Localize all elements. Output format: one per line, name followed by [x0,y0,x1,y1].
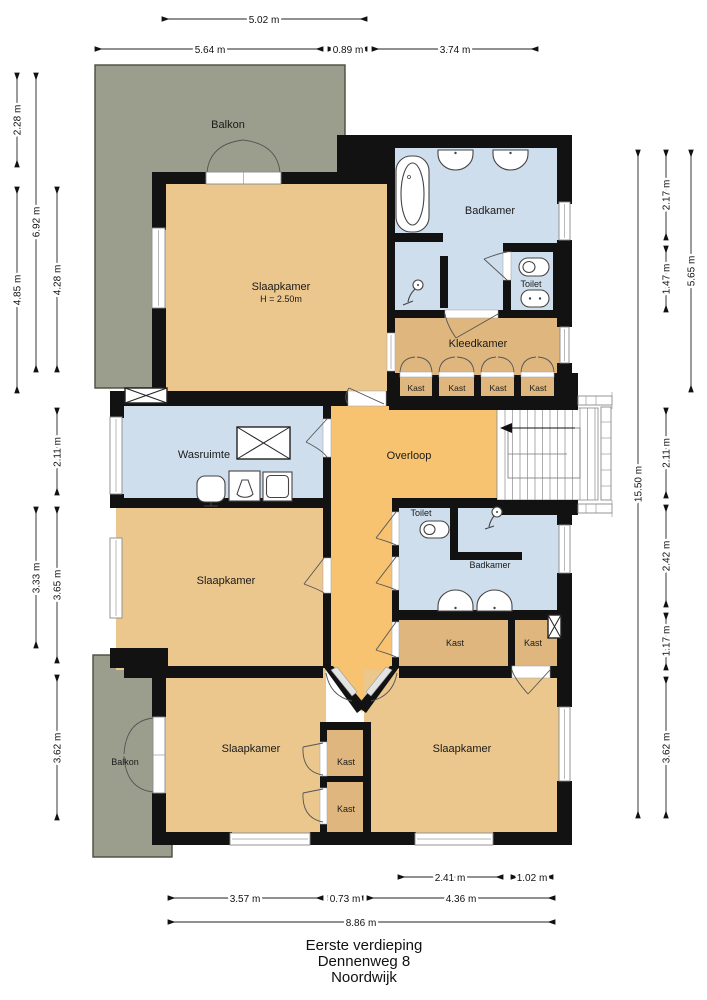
shaft-icon [125,388,167,403]
door-opening [320,788,327,824]
plan-title: Eerste verdieping Dennenweg 8 Noordwijk [306,937,423,986]
room-label-slaapkamer-tl-height: H = 2.50m [260,294,302,304]
title-street: Dennenweg 8 [318,953,411,970]
shaft-icon [548,615,561,638]
door-opening [320,742,327,776]
door-opening [348,391,386,406]
dimension-label: 5.02 m [249,15,280,26]
room-label-kast-b: Kast [448,383,466,393]
dimension-label: 3.74 m [440,45,471,56]
room-label-slaapkamer-mid: Slaapkamer [197,575,256,587]
dimension-label: 1.17 m [662,626,673,657]
dimension-label: 5.64 m [195,45,226,56]
dimension-label: 5.65 m [687,256,698,287]
room-label-kast-h: Kast [337,804,356,814]
door-opening [392,622,399,657]
bathtub-icon [396,156,429,232]
staircase [497,408,598,500]
room-label-kleedkamer: Kleedkamer [449,338,508,350]
dimension-label: 2.11 m [53,437,64,467]
title-city: Noordwijk [331,969,397,986]
room-label-wasruimte: Wasruimte [178,449,230,461]
dimension-label: 8.86 m [346,918,377,929]
dimension-label: 2.17 m [662,180,673,211]
dimension-label: 2.42 m [662,541,673,572]
shaft-icon [237,427,290,459]
room-label-balkon-bottom: Balkon [111,757,139,767]
dimension-label: 4.28 m [53,265,64,296]
door-opening [445,310,498,318]
room-floors [116,144,563,836]
door-opening [392,512,399,545]
room-label-balkon-top: Balkon [211,119,245,131]
room-label-kast-f: Kast [524,638,543,648]
laundry-sink-icon [197,476,225,506]
room-label-overloop: Overloop [387,450,432,462]
room-label-kast-c: Kast [489,383,507,393]
room-label-slaapkamer-tl: Slaapkamer [252,281,311,293]
dimension-label: 1.02 m [517,873,548,884]
washing-machine-icon [229,471,260,501]
room-label-slaapkamer-bl: Slaapkamer [222,743,281,755]
door-opening [503,252,511,280]
dimension-label: 0.73 m [330,894,361,905]
dimension-label: 3.65 m [53,570,64,601]
room-label-kast-d: Kast [529,383,547,393]
dimension-label: 3.57 m [230,894,261,905]
floorplan-drawing: Balkon Slaapkamer H = 2.50m Badkamer Toi… [0,0,707,1000]
room-label-badkamer-mid: Badkamer [469,560,510,570]
toilet-icon [420,521,449,538]
room-label-badkamer-top: Badkamer [465,205,515,217]
room-label-kast-e: Kast [446,638,465,648]
room-label-toilet-mid: Toilet [410,508,432,518]
door-opening [392,557,399,590]
dimension-label: 6.92 m [32,207,43,238]
floorplan-page: Balkon Slaapkamer H = 2.50m Badkamer Toi… [0,0,707,1000]
room-label-kast-a: Kast [407,383,425,393]
dimension-label: 2.28 m [13,105,24,136]
dimension-label: 3.62 m [53,733,64,764]
dimension-label: 3.33 m [32,563,43,594]
dimension-label: 4.36 m [446,894,477,905]
door-opening [323,419,331,457]
dimension-label: 4.85 m [13,275,24,306]
dimension-label: 1.47 m [662,264,673,295]
dimension-label: 0.89 m [333,45,364,56]
dimension-label: 2.11 m [662,438,673,468]
dimension-label: 2.41 m [435,873,466,884]
door-opening [323,558,331,593]
room-label-kast-g: Kast [337,757,356,767]
bidet-icon [521,290,549,307]
room-label-toilet-top: Toilet [520,279,542,289]
room-label-slaapkamer-br: Slaapkamer [433,743,492,755]
dimension-label: 15.50 m [634,466,645,502]
dimension-label: 3.62 m [662,733,673,764]
title-floor: Eerste verdieping [306,937,423,954]
dryer-icon [263,472,292,501]
toilet-icon [519,258,549,276]
